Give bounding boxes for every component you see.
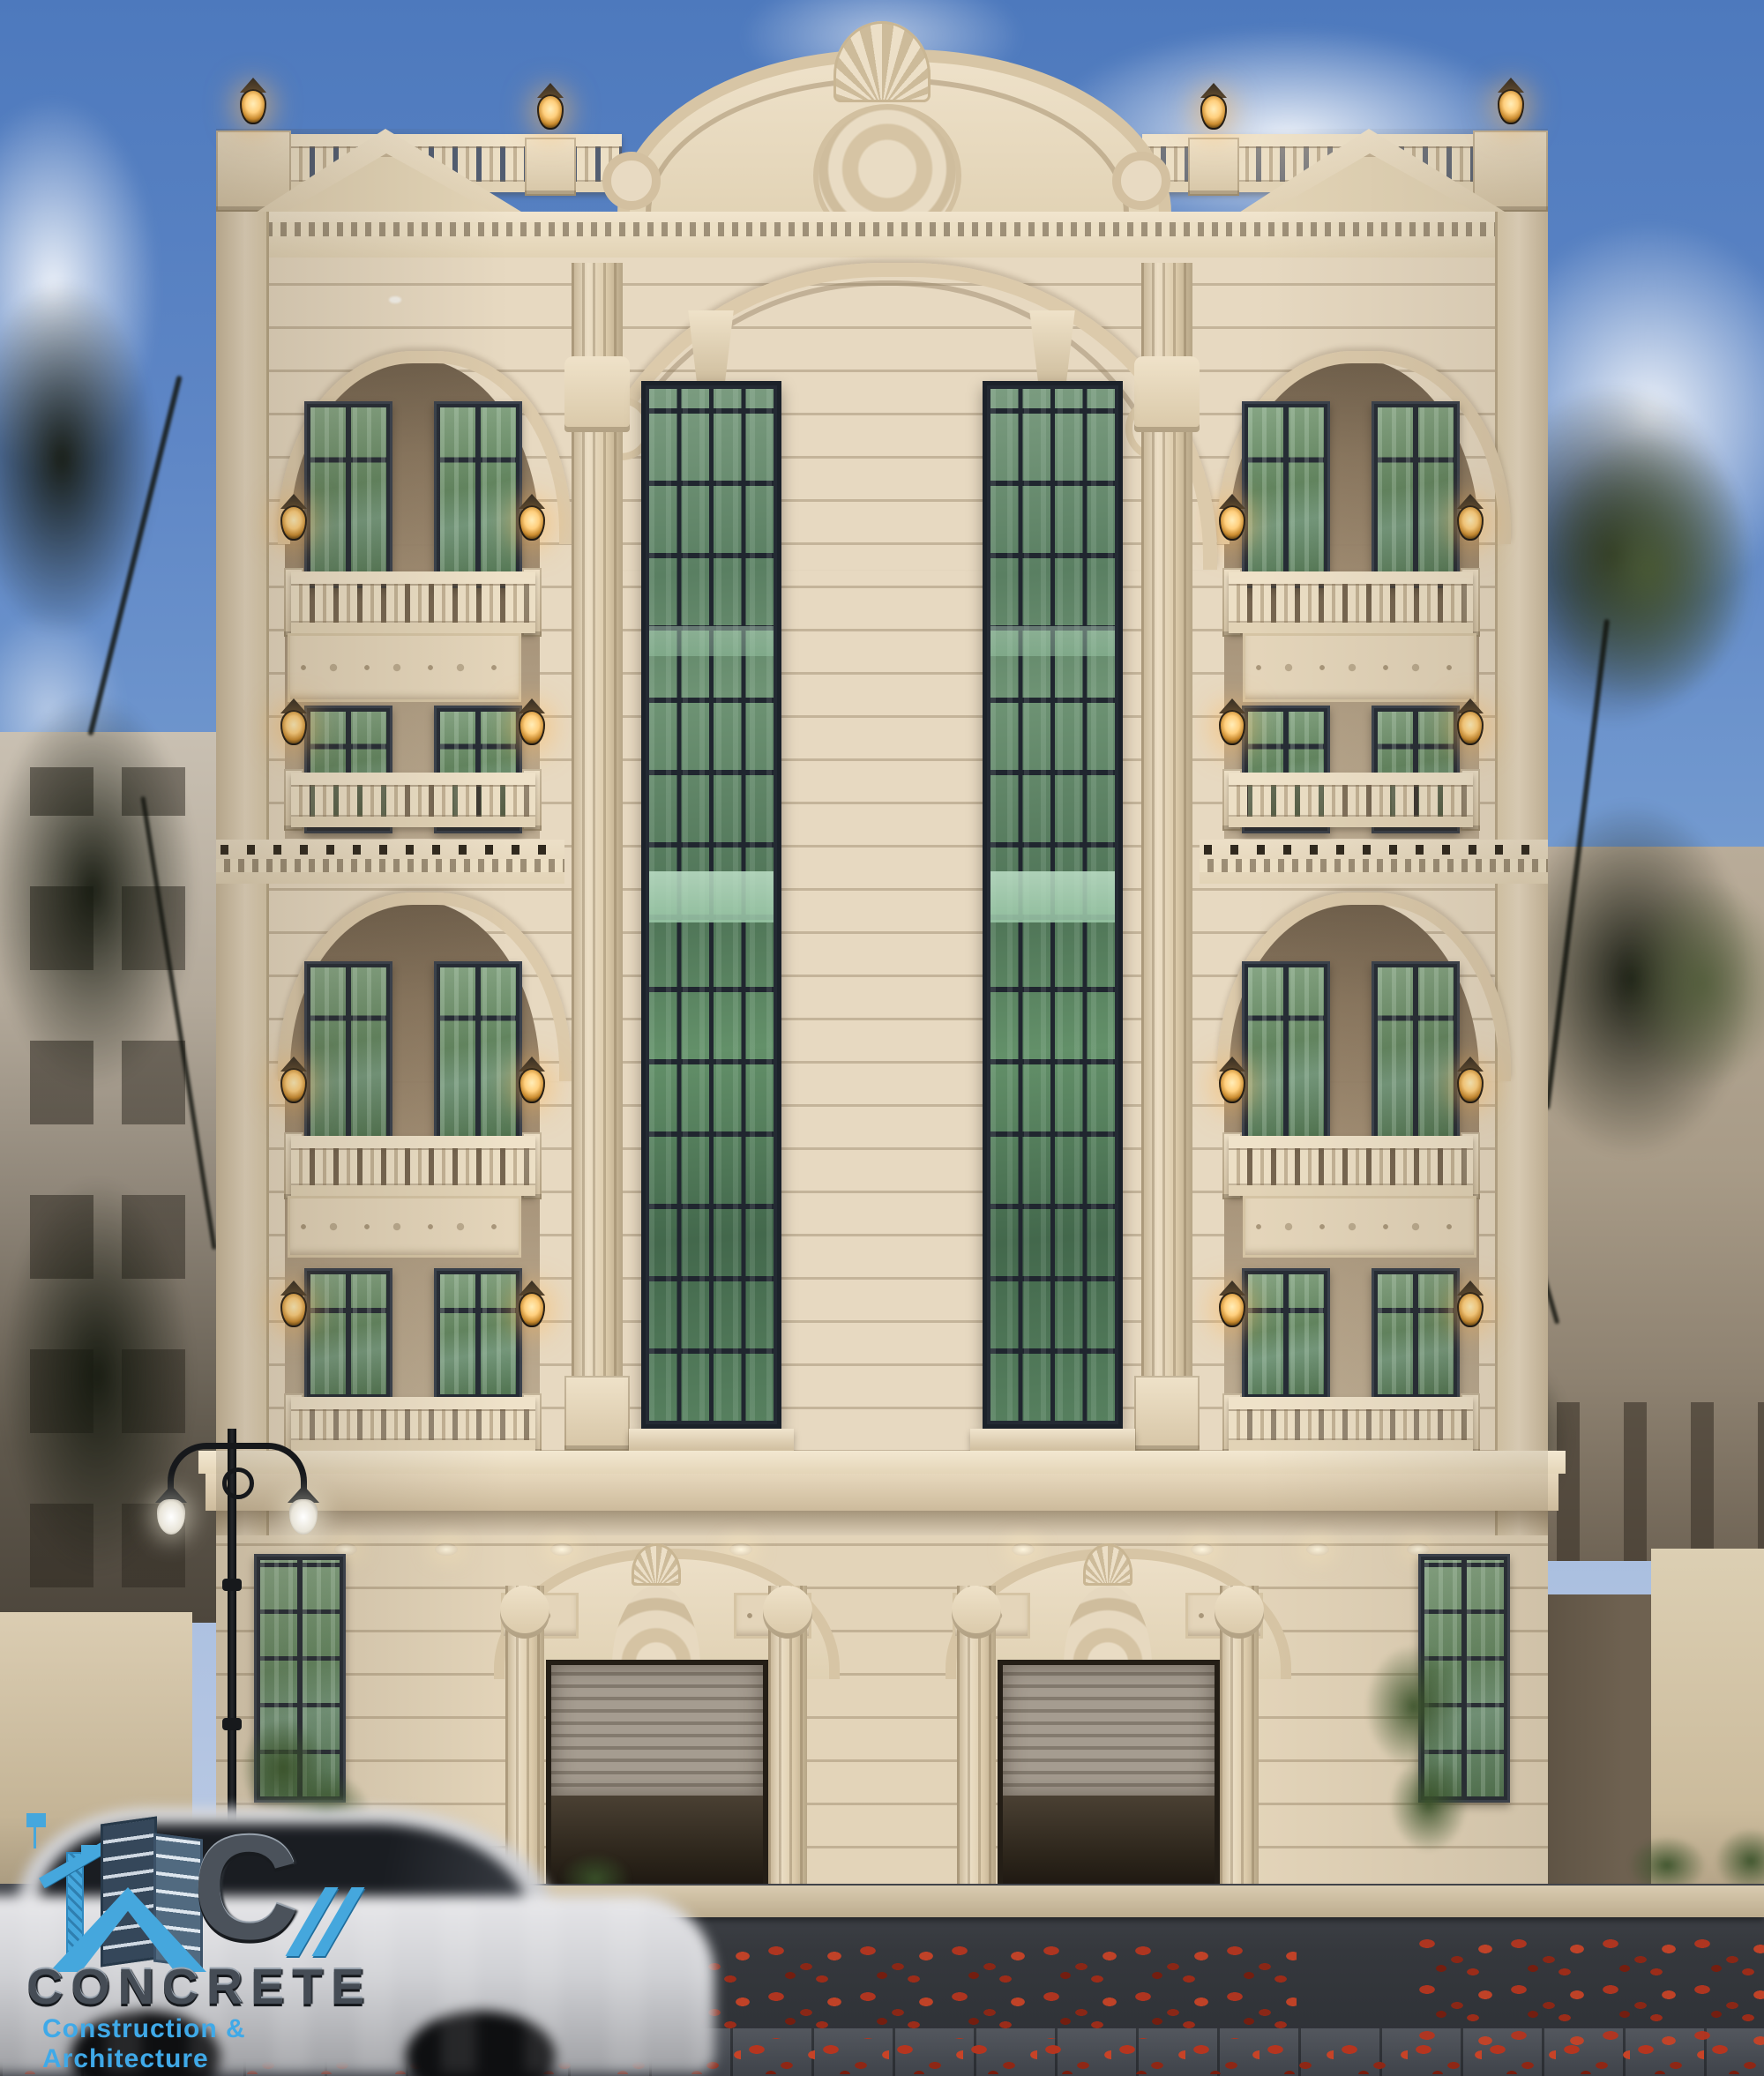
downlight-glow	[1191, 1543, 1214, 1556]
balcony-balustrade	[291, 571, 535, 633]
lantern-glow	[519, 1292, 545, 1327]
relief-panel	[288, 633, 521, 702]
main-cornice-molding	[198, 1451, 1566, 1474]
window	[434, 1268, 522, 1400]
window-glass	[310, 1274, 386, 1394]
relief-panel	[1243, 1196, 1476, 1258]
mid-band-dots	[220, 845, 560, 855]
downlight-glow	[550, 1543, 573, 1556]
downlight-glow	[1306, 1543, 1329, 1556]
pilaster-capital	[564, 356, 630, 432]
lantern-glow	[280, 505, 307, 541]
roof-lantern	[1495, 78, 1527, 129]
window	[434, 401, 522, 588]
logo-tagline: Construction & Architecture	[42, 2014, 404, 2074]
logo: C CONCRETE Construction & Architecture	[25, 1806, 404, 2053]
garage-interior	[1003, 1796, 1215, 1889]
pilaster	[1141, 263, 1192, 1505]
lamp-pole-collar	[222, 1579, 242, 1591]
window	[1372, 1268, 1460, 1400]
portal-pilaster-scroll	[952, 1586, 1001, 1639]
lantern-glow	[1219, 505, 1245, 541]
tree-canopy-right-lit	[1588, 838, 1764, 1129]
window-glass	[1378, 967, 1454, 1136]
roof-lantern	[534, 83, 566, 134]
lantern-glow	[537, 94, 564, 130]
lantern-glow	[1457, 505, 1484, 541]
logo-name: CONCRETE	[26, 1958, 404, 2016]
downlight-glow	[729, 1543, 752, 1556]
wall-lantern	[278, 698, 310, 750]
window-glass	[440, 407, 516, 582]
bird	[389, 296, 401, 303]
tree-canopy-left	[0, 617, 238, 1164]
wall-lantern	[516, 1057, 548, 1108]
window	[304, 961, 392, 1142]
window	[434, 961, 522, 1142]
lantern-glow	[1457, 710, 1484, 745]
wall-lantern	[1216, 1057, 1248, 1108]
lantern-glow	[1200, 94, 1227, 130]
pilaster	[572, 263, 623, 1505]
lantern-glow	[1219, 710, 1245, 745]
wall-lantern	[278, 1057, 310, 1108]
window	[1372, 961, 1460, 1142]
mid-band-dentils	[1200, 859, 1548, 872]
window-glass	[1248, 967, 1324, 1136]
glass-light-band	[649, 626, 774, 656]
lantern-glow	[519, 505, 545, 541]
glass-light-band	[649, 871, 774, 922]
lantern-glow	[1457, 1292, 1484, 1327]
window-glass	[1248, 1274, 1324, 1394]
wall-lantern	[1454, 1281, 1486, 1332]
lantern-glow	[240, 89, 266, 124]
pilaster-pedestal	[1134, 1376, 1200, 1451]
balcony-balustrade	[1229, 571, 1473, 633]
pediment-volute	[602, 152, 661, 210]
tree-canopy-left	[0, 1102, 229, 1649]
balcony-balustrade	[1229, 773, 1473, 827]
roller-shutter	[1003, 1665, 1215, 1796]
lantern-glow	[280, 1068, 307, 1103]
downlight-glow	[435, 1543, 458, 1556]
lantern-pedestal	[525, 138, 576, 196]
entablature-dentils	[216, 222, 1548, 236]
window-glass	[1248, 407, 1324, 582]
potted-tree	[1376, 1737, 1482, 1870]
lamp-scroll	[222, 1467, 254, 1499]
lantern-glow	[1457, 1068, 1484, 1103]
pilaster-capital	[1134, 356, 1200, 432]
pediment-volute	[1112, 152, 1170, 210]
portal-pilaster-scroll	[1215, 1586, 1264, 1639]
lantern-glow	[280, 1292, 307, 1327]
glass-light-band	[990, 871, 1115, 922]
window	[304, 1268, 392, 1400]
crane-trolley	[26, 1813, 46, 1827]
glass-light-band	[990, 626, 1115, 656]
roof-lantern	[1198, 83, 1230, 134]
wall-lantern	[278, 494, 310, 545]
window	[304, 401, 392, 588]
logo-monogram: C	[192, 1813, 299, 1961]
wall-lantern	[1216, 494, 1248, 545]
crane-hook-line	[34, 1826, 36, 1848]
lantern-glow	[519, 710, 545, 745]
wall-lantern	[516, 494, 548, 545]
window-glass	[440, 967, 516, 1136]
corner-pier-left	[216, 212, 269, 1579]
wall-lantern	[1216, 698, 1248, 750]
wall-lantern	[516, 698, 548, 750]
balcony-balustrade	[291, 1397, 535, 1451]
relief-panel	[1243, 633, 1476, 702]
window	[1242, 1268, 1330, 1400]
portal-pilaster-scroll	[500, 1586, 549, 1639]
downlight-glow	[1012, 1543, 1035, 1556]
window-glass	[310, 407, 386, 582]
balcony-balustrade	[291, 773, 535, 827]
curtain-wall-strip	[641, 381, 781, 1429]
roller-shutter	[551, 1665, 763, 1796]
main-cornice-fascia	[206, 1474, 1558, 1511]
balcony-balustrade	[1229, 1397, 1473, 1451]
lamp-pole-collar	[222, 1718, 242, 1730]
wall-lantern	[516, 1281, 548, 1332]
architectural-render-scene: C CONCRETE Construction & Architecture	[0, 0, 1764, 2076]
mid-band-dots	[1204, 845, 1543, 855]
window	[1372, 401, 1460, 588]
lantern-glow	[1219, 1068, 1245, 1103]
mid-band-dentils	[216, 859, 564, 872]
lantern-glow	[519, 1068, 545, 1103]
lantern-glow	[1498, 89, 1524, 124]
roof-lantern	[237, 78, 269, 129]
window	[1242, 961, 1330, 1142]
pilaster-pedestal	[564, 1376, 630, 1451]
balcony-balustrade	[1229, 1136, 1473, 1196]
window	[1242, 401, 1330, 588]
wall-lantern	[278, 1281, 310, 1332]
relief-panel	[288, 1196, 521, 1258]
lantern-glow	[1219, 1292, 1245, 1327]
wall-lantern	[1216, 1281, 1248, 1332]
curtain-wall-strip	[983, 381, 1123, 1429]
window-glass	[1378, 407, 1454, 582]
window-glass	[310, 967, 386, 1136]
strip-sill	[629, 1429, 794, 1452]
wall-lantern	[1454, 1057, 1486, 1108]
lantern-pedestal	[1188, 138, 1239, 196]
fallen-leaves	[1411, 1933, 1764, 2048]
strip-sill	[970, 1429, 1135, 1452]
window-glass	[1378, 1274, 1454, 1394]
corner-pier-right	[1495, 212, 1548, 1579]
wall-lantern	[1454, 494, 1486, 545]
lantern-glow	[280, 710, 307, 745]
window-glass	[440, 1274, 516, 1394]
portal-pilaster-scroll	[763, 1586, 812, 1639]
wall-lantern	[1454, 698, 1486, 750]
balcony-balustrade	[291, 1136, 535, 1196]
